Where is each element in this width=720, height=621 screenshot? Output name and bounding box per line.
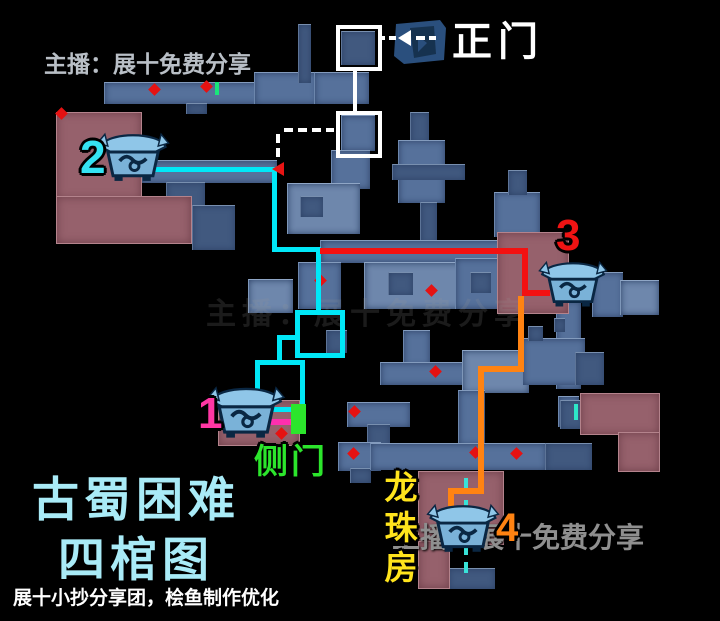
route-2-segment xyxy=(272,247,321,252)
entry-dash xyxy=(276,148,280,157)
map-corridor xyxy=(448,568,495,589)
streamer-watermark-top: 主播：展十免费分享 xyxy=(44,53,251,76)
entry-dash xyxy=(298,128,307,132)
east-pink-room xyxy=(618,432,660,472)
gate-dash xyxy=(416,36,425,40)
coffin-number-3: 3 xyxy=(556,214,580,258)
entry-arrow-icon xyxy=(272,162,284,176)
gate-dash xyxy=(389,36,396,40)
coffin-icon-4 xyxy=(424,498,502,559)
main-gate-label: 正门 xyxy=(452,22,544,62)
streamer-watermark-center: 主播：展十免费分享 xyxy=(206,300,530,330)
entry-dash xyxy=(284,128,293,132)
map-corridor xyxy=(298,24,311,83)
main-gate-room-outline xyxy=(336,25,382,71)
map-corridor xyxy=(420,202,437,243)
map-room xyxy=(494,192,540,237)
credit-line: 展十小抄分享团，桧鱼制作优化 xyxy=(13,589,279,608)
route-2-segment xyxy=(316,247,321,315)
portal-dash-icon xyxy=(464,562,468,573)
entry-dash xyxy=(326,128,334,132)
side-door-marker xyxy=(291,404,306,434)
route-3-segment xyxy=(522,248,528,294)
gate-dash xyxy=(378,36,385,40)
map-corridor xyxy=(554,318,565,332)
coffin-icon-2 xyxy=(96,124,170,191)
route-4-segment xyxy=(518,296,524,372)
map-canvas: 主播：展十免费分享 主播：展十免费分享 主播：展十免费分享 正门 侧门 龙珠房 … xyxy=(0,0,720,621)
map-corridor xyxy=(314,72,369,104)
gate-dash xyxy=(429,36,436,40)
coffin-number-4: 4 xyxy=(496,508,518,548)
map-corridor xyxy=(545,443,592,470)
gate-arrow-icon xyxy=(398,30,411,46)
map-corridor xyxy=(528,326,543,341)
map-room xyxy=(575,352,604,385)
map-corridor xyxy=(410,112,429,143)
map-title-line2: 四棺图 xyxy=(58,536,214,583)
portal-tick-icon xyxy=(215,82,219,95)
map-corridor xyxy=(186,103,207,114)
coffin-number-1: 1 xyxy=(198,392,222,436)
route-4-segment xyxy=(478,366,484,492)
dragon-pearl-room-label: 龙珠房 xyxy=(382,470,415,590)
map-room xyxy=(470,272,491,293)
route-3-segment xyxy=(320,248,528,254)
side-door-label: 侧门 xyxy=(254,445,328,479)
entry-dash xyxy=(312,128,321,132)
route-2-room-outline xyxy=(295,310,345,358)
map-room xyxy=(287,183,360,234)
route-2-segment xyxy=(272,167,277,252)
map-corridor xyxy=(350,468,371,483)
route-4-segment xyxy=(482,366,524,372)
gate-connector-line xyxy=(353,67,357,111)
map-corridor xyxy=(508,170,527,195)
map-corridor xyxy=(392,164,465,180)
map-corridor xyxy=(403,330,430,366)
coffin-icon-3 xyxy=(538,253,608,316)
map-room xyxy=(388,272,413,295)
east-pink-room xyxy=(580,393,660,435)
map-room xyxy=(300,196,323,217)
map-title-line1: 古蜀困难 xyxy=(32,476,240,523)
portal-tick-icon xyxy=(574,404,578,420)
entry-dash xyxy=(276,134,280,143)
entry-room-outline xyxy=(336,111,382,158)
coffin-number-2: 2 xyxy=(80,134,106,180)
map-corridor xyxy=(192,205,235,250)
treasure-room-2-annex xyxy=(56,196,192,244)
map-room xyxy=(620,280,659,315)
